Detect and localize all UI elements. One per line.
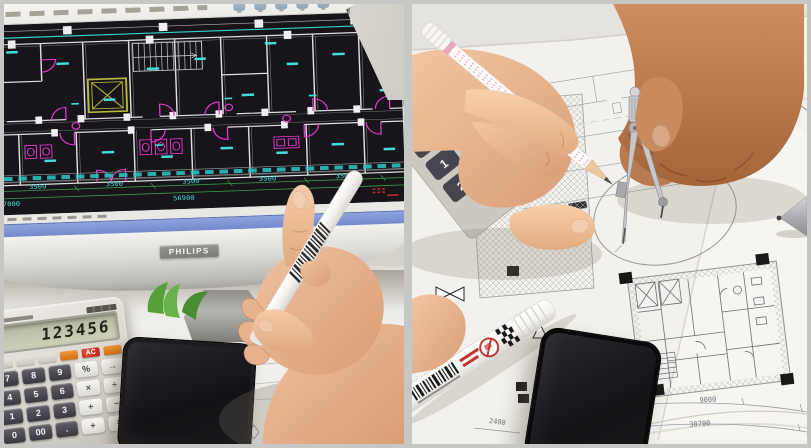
panel-divider: [404, 0, 412, 448]
right-photo-drafting: 9000 30700 2400: [412, 4, 807, 444]
pointing-hand: [4, 4, 404, 444]
drafting-hands: [412, 4, 807, 444]
left-photo-cad-monitor: 3500 3500 3500 3500 3500 7000 56900: [4, 4, 404, 444]
pencil-lead: [604, 177, 614, 186]
wrist: [412, 294, 466, 374]
photo-collage: 3500 3500 3500 3500 3500 7000 56900: [0, 0, 811, 448]
